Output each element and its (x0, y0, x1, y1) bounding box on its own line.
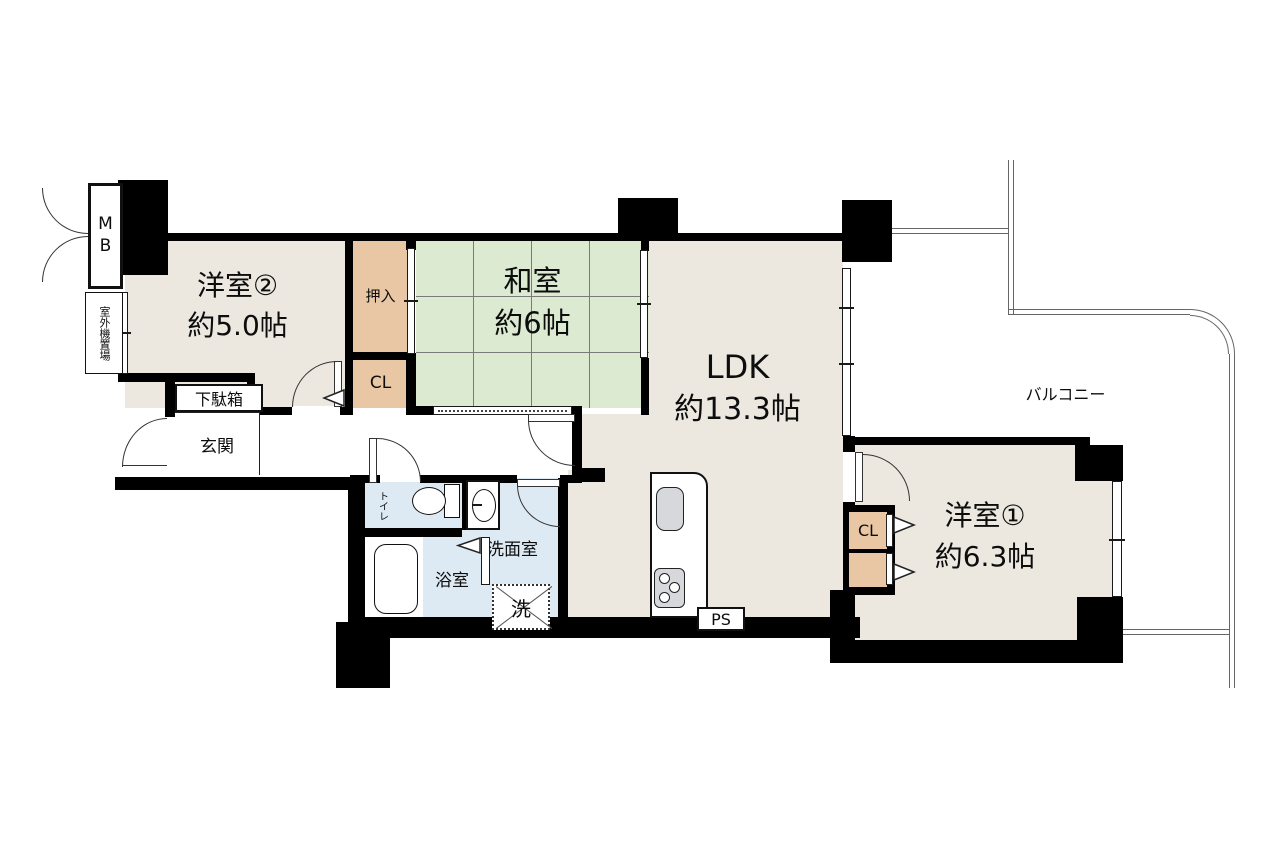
room2-door-opening (292, 406, 340, 416)
room2-size: 約5.0帖 (130, 306, 345, 346)
toilet-label: トイレ (375, 485, 389, 527)
ldk-window-tick-1 (839, 307, 854, 309)
wall-room1-top (843, 437, 1090, 445)
washitsu-south-sliding-track (438, 410, 567, 412)
wall-oshiire-left (345, 241, 353, 415)
ldk-floor-southwest (568, 470, 649, 617)
vanity-counter (466, 480, 500, 530)
room1-name: 洋室① (870, 495, 1100, 536)
laundry-label: 洗 (494, 586, 548, 628)
room1-label: 洋室① 約6.3帖 (870, 495, 1100, 590)
room1-door-leaf (855, 452, 863, 502)
ldk-label: LDK 約13.3帖 (630, 345, 845, 445)
oshiire-label: 押入 (353, 285, 408, 305)
kitchen-sink (656, 487, 684, 531)
wall-room1-bottom (830, 640, 1123, 663)
washitsu-size: 約6帖 (416, 302, 649, 344)
room1-size: 約6.3帖 (870, 536, 1100, 577)
entrance-area: 玄関 (175, 412, 260, 475)
wall-west-lower (348, 483, 365, 623)
toilet-bowl (412, 487, 446, 515)
stove-burner-2 (669, 582, 680, 593)
wall-toilet-bottom (365, 528, 462, 537)
wall-top (118, 233, 851, 241)
stove-burner-3 (659, 592, 670, 603)
wall-bottom-main (365, 617, 860, 638)
balcony-rail-east (1229, 354, 1235, 688)
entry-door-arc (122, 418, 167, 467)
wall-room1-right-upper (1112, 445, 1122, 485)
pipe-space-box: PS (697, 607, 745, 631)
meter-box-label: MB (91, 186, 120, 286)
balcony-label: バルコニー (1008, 383, 1123, 403)
closet2-door-arrow (322, 389, 346, 407)
closet2-label: CL (353, 372, 408, 394)
meter-box: MB (88, 183, 123, 289)
mb-door-arc-top (42, 188, 88, 234)
stove-burner-1 (659, 573, 670, 584)
balcony-rail-bottom-connector (1123, 629, 1229, 635)
balcony-rail-mid (1008, 309, 1190, 315)
wall-room2-bottom-left (118, 373, 255, 382)
room1-door-opening (843, 452, 855, 502)
kitchen-stove (654, 568, 685, 608)
laundry-box: 洗 (492, 584, 550, 630)
wall-oshiire-divider (353, 352, 408, 360)
room1-window-tick (1109, 539, 1125, 541)
floor-plan: MB 室外機置場 下駄箱 玄関 トイレ 洗面室 洗 浴室 (0, 0, 1280, 850)
pipe-space-label: PS (699, 609, 743, 629)
wall-entrance-bottom (115, 477, 350, 490)
toilet-door-arc (377, 438, 421, 482)
washitsu-label: 和室 約6帖 (416, 260, 649, 355)
balcony-rail-top-connector (892, 228, 1008, 234)
pillar-top-right (842, 200, 892, 262)
balcony-rail-north (1008, 160, 1014, 315)
hall-ldk-door-arc (528, 420, 575, 466)
mb-door-arc-bottom (42, 236, 88, 282)
toilet-tank (444, 484, 460, 518)
pillar-top-mid (618, 198, 678, 240)
bathroom-label: 浴室 (423, 567, 481, 589)
shoe-cabinet-label: 下駄箱 (177, 386, 261, 410)
pillar-top-left (118, 180, 168, 275)
room2-label: 洋室② 約5.0帖 (130, 266, 345, 356)
bathroom-folding-door (481, 537, 490, 585)
shoe-cabinet: 下駄箱 (175, 384, 263, 412)
wall-washitsu-bottom-left (408, 406, 433, 415)
balcony-rail-corner-inner (1190, 315, 1229, 354)
entry-door-leaf (122, 465, 167, 466)
wall-room1-left-widen (830, 590, 855, 641)
room2-name: 洋室② (130, 266, 345, 306)
vanity-sink (472, 489, 496, 522)
bathroom-door-arrow (456, 537, 482, 554)
toilet-door-leaf (369, 438, 377, 483)
washitsu-name: 和室 (416, 260, 649, 302)
outdoor-unit-box: 室外機置場 (85, 292, 123, 374)
ldk-size: 約13.3帖 (630, 389, 845, 431)
ldk-name: LDK (630, 345, 845, 389)
entrance-label: 玄関 (175, 413, 259, 475)
outdoor-unit-label: 室外機置場 (86, 293, 122, 373)
vanity-sink-tap (472, 504, 482, 506)
bathtub (374, 544, 418, 614)
